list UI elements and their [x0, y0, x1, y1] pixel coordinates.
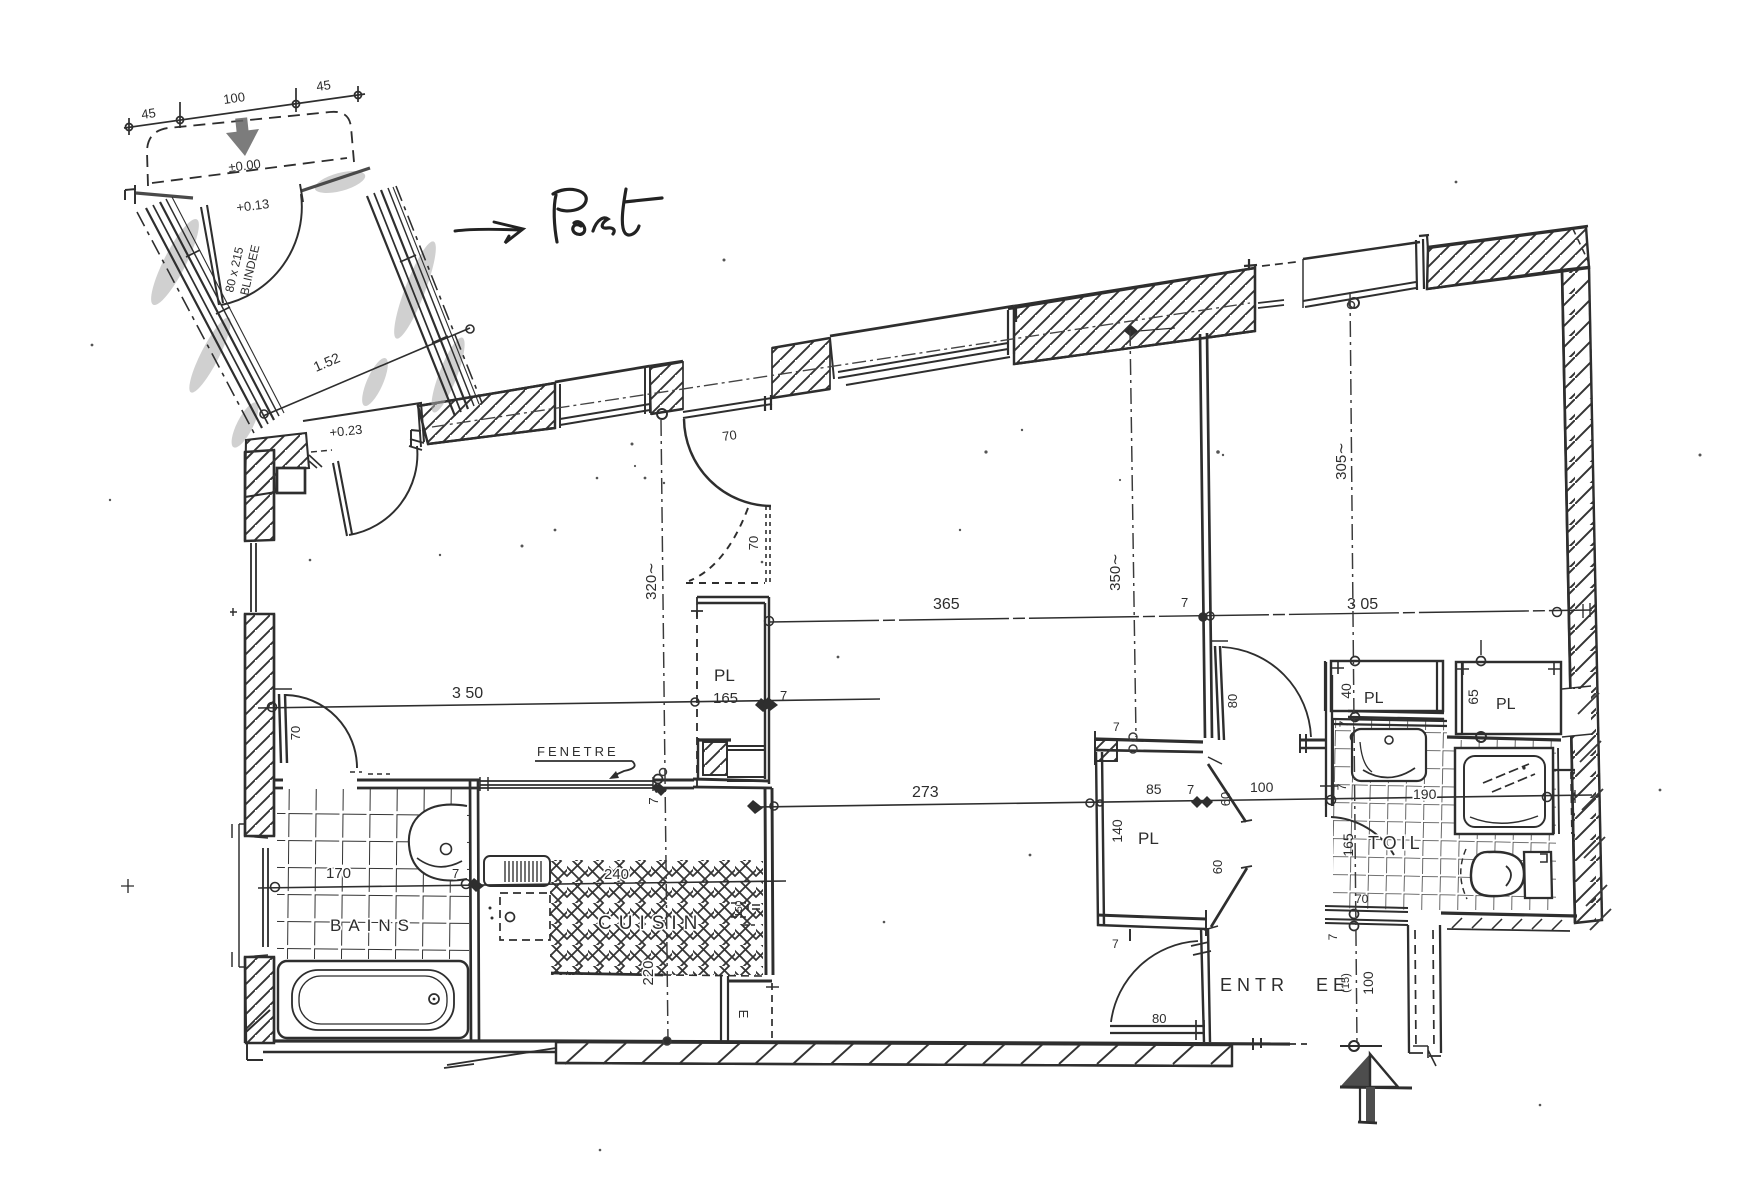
svg-text:TOIL: TOIL: [1368, 833, 1424, 853]
svg-text:PL: PL: [1364, 690, 1384, 707]
svg-text:140: 140: [1109, 819, 1125, 843]
svg-text:70: 70: [721, 427, 737, 444]
svg-text:45: 45: [140, 105, 156, 122]
svg-text:7: 7: [1335, 783, 1349, 790]
svg-text:PL: PL: [1138, 829, 1159, 848]
svg-text:PL: PL: [714, 666, 735, 685]
svg-text:7: 7: [1326, 933, 1340, 940]
svg-text:100: 100: [222, 89, 246, 107]
svg-text:70: 70: [746, 536, 761, 550]
svg-text:150: 150: [734, 900, 745, 917]
svg-text:7: 7: [452, 866, 459, 881]
svg-text:7: 7: [1337, 720, 1351, 727]
svg-text:7: 7: [1112, 937, 1119, 951]
svg-text:PL: PL: [1496, 696, 1516, 713]
svg-text:60: 60: [1218, 792, 1233, 806]
svg-text:FENETRE: FENETRE: [537, 744, 619, 759]
svg-text:165: 165: [713, 690, 738, 707]
svg-text:70: 70: [288, 726, 303, 740]
svg-text:BAINS: BAINS: [330, 916, 416, 935]
svg-text:7: 7: [780, 688, 787, 703]
svg-text:40: 40: [1338, 683, 1354, 699]
svg-text:80: 80: [1152, 1011, 1166, 1026]
svg-text:60: 60: [1210, 860, 1225, 874]
svg-text:45: 45: [315, 77, 331, 94]
svg-text:320∼: 320∼: [643, 562, 660, 600]
svg-text:3 05: 3 05: [1347, 596, 1378, 613]
svg-text:220: 220: [640, 960, 657, 985]
svg-text:(15): (15): [1340, 973, 1352, 993]
svg-text:100: 100: [1360, 971, 1376, 995]
svg-text:365: 365: [933, 596, 960, 613]
svg-text:E: E: [736, 1010, 751, 1019]
svg-text:273: 273: [912, 784, 939, 801]
svg-text:100: 100: [1250, 779, 1274, 795]
svg-text:70: 70: [1355, 892, 1369, 906]
svg-text:85: 85: [1146, 781, 1162, 797]
svg-text:7: 7: [1181, 595, 1188, 610]
svg-text:170: 170: [326, 865, 351, 882]
svg-text:7: 7: [646, 797, 661, 804]
svg-text:350∼: 350∼: [1107, 553, 1124, 591]
svg-text:240: 240: [604, 866, 629, 883]
svg-text:7: 7: [1187, 782, 1194, 797]
svg-text:80: 80: [1225, 694, 1240, 708]
svg-text:190: 190: [1413, 786, 1437, 802]
svg-text:65: 65: [1465, 689, 1481, 705]
svg-text:165: 165: [1340, 833, 1356, 857]
svg-text:CUISIN: CUISIN: [598, 913, 704, 934]
svg-text:3 50: 3 50: [452, 685, 483, 702]
svg-text:7: 7: [1113, 720, 1120, 734]
svg-text:ENTR: ENTR: [1220, 975, 1289, 995]
svg-text:305∼: 305∼: [1333, 442, 1350, 480]
